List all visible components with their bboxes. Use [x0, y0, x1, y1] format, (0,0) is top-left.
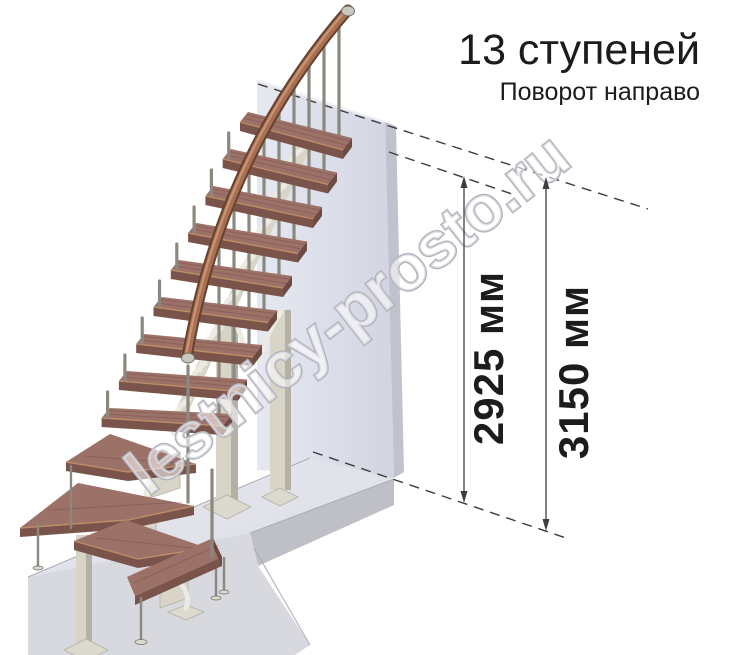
handrail-bottom-cap	[182, 353, 195, 363]
staircase-diagram-page: lestnicy-prosto.ru 2925 мм 3150 мм 13 ст…	[0, 0, 744, 655]
dimension-label-outer: 3150 мм	[550, 285, 597, 459]
turn-direction-subtitle: Поворот направо	[0, 78, 700, 107]
dimension-3150: 3150 мм	[543, 177, 598, 531]
handrail-top-cap	[342, 6, 355, 16]
caption-block: 13 ступеней Поворот направо	[0, 28, 700, 107]
steps-count-title: 13 ступеней	[0, 28, 700, 73]
dimension-label-inner: 2925 мм	[465, 271, 512, 445]
